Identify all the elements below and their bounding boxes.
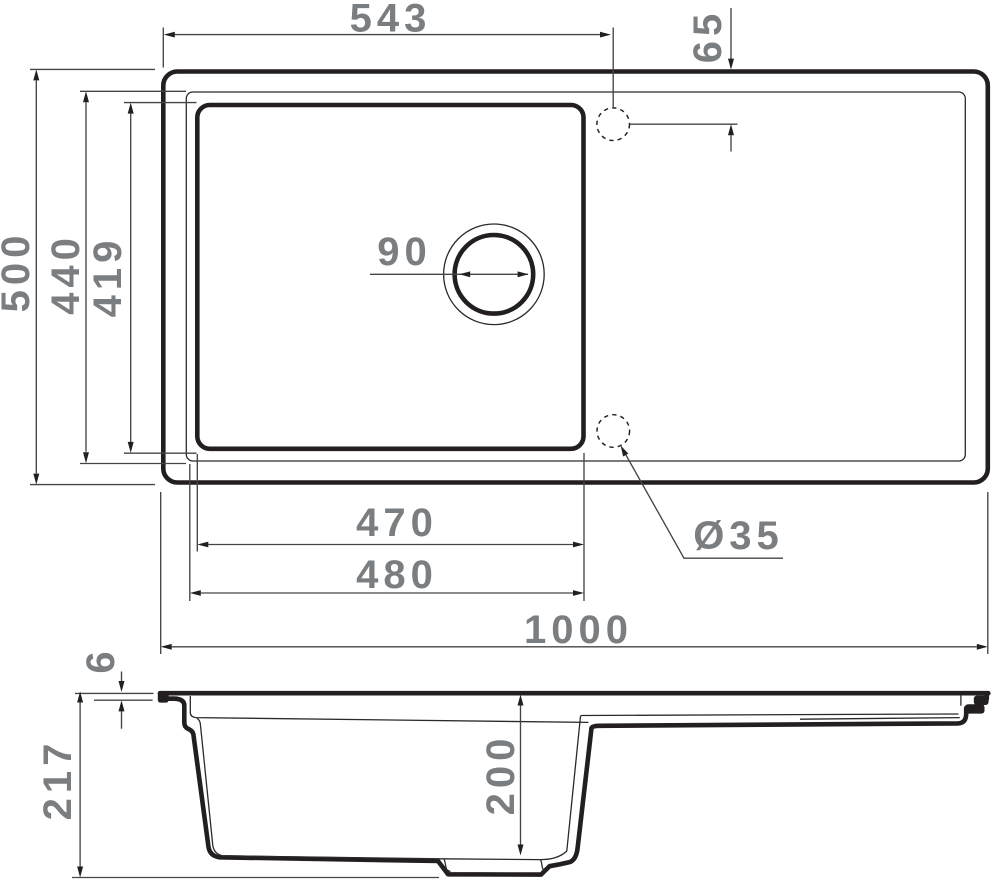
svg-text:470: 470 bbox=[356, 501, 438, 545]
svg-text:440: 440 bbox=[44, 233, 88, 315]
svg-text:419: 419 bbox=[86, 236, 130, 318]
svg-text:6: 6 bbox=[79, 646, 123, 673]
svg-text:90: 90 bbox=[377, 230, 432, 274]
svg-text:1000: 1000 bbox=[524, 608, 633, 652]
svg-text:543: 543 bbox=[350, 0, 432, 41]
svg-text:480: 480 bbox=[356, 553, 438, 597]
svg-text:500: 500 bbox=[0, 231, 38, 313]
svg-text:Ø35: Ø35 bbox=[693, 514, 784, 558]
svg-text:217: 217 bbox=[36, 739, 80, 821]
svg-text:65: 65 bbox=[686, 9, 730, 64]
svg-text:200: 200 bbox=[479, 734, 523, 816]
